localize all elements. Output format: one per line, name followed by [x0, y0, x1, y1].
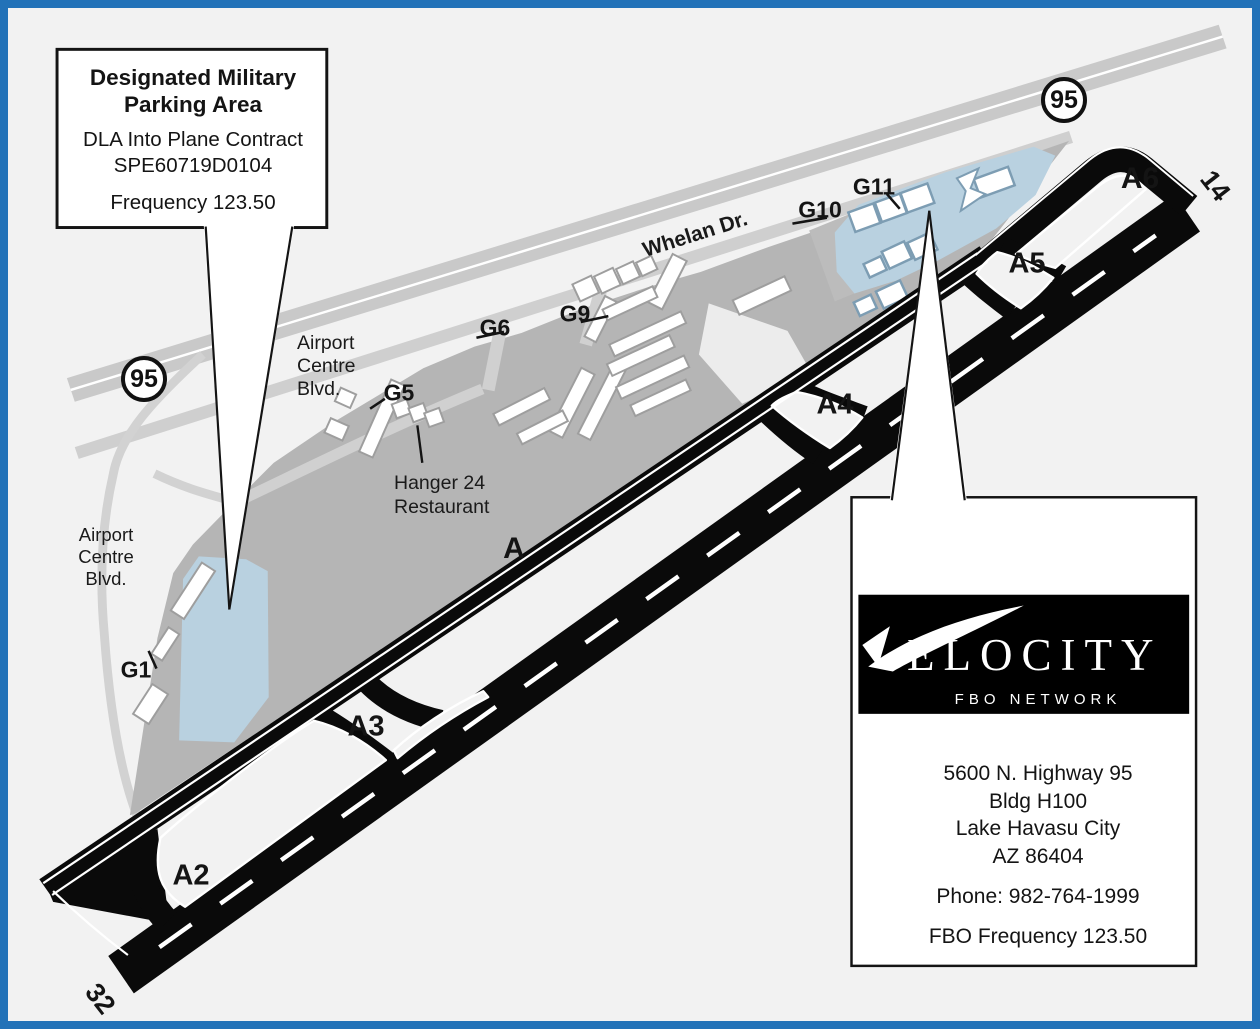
road-label-line: Blvd. [60, 568, 152, 590]
taxiway-a4-label: A4 [816, 391, 853, 420]
road-label-line: Airport [60, 524, 152, 546]
poi-label-line: Hanger 24 [394, 471, 489, 495]
gate-g11-label: G11 [853, 176, 895, 199]
hanger24-restaurant-label: Hanger 24 Restaurant [394, 471, 489, 519]
shield-number: 95 [1050, 86, 1078, 115]
military-title-line: Parking Area [56, 91, 330, 118]
blvd-branch [155, 474, 230, 501]
shield-number: 95 [130, 365, 158, 394]
gate-g6-label: G6 [480, 317, 511, 340]
fbo-address-line: Lake Havasu City [863, 815, 1213, 843]
gate-g9-label: G9 [560, 303, 591, 326]
military-frequency: Frequency 123.50 [56, 190, 330, 216]
gate-g10-label: G10 [798, 199, 841, 222]
gate-g1-label: G1 [121, 659, 152, 682]
military-callout-content: Designated Military Parking Area DLA Int… [56, 50, 330, 231]
highway-95-shield-left: 95 [121, 356, 167, 402]
fbo-address-line: Bldg H100 [863, 788, 1213, 816]
taxiway-a3-label: A3 [347, 713, 384, 742]
gate-g5-label: G5 [384, 382, 415, 405]
military-contract-line: DLA Into Plane Contract [56, 127, 330, 153]
taxiway-a6-label: A6 [1121, 164, 1159, 194]
airport-centre-blvd-label-upper: Airport Centre Blvd. [297, 332, 356, 401]
fbo-frequency: FBO Frequency 123.50 [863, 923, 1213, 951]
fbo-phone: Phone: 982-764-1999 [863, 883, 1213, 911]
poi-label-line: Restaurant [394, 495, 489, 519]
road-label-line: Centre [60, 546, 152, 568]
highway-95-shield-right: 95 [1041, 77, 1087, 123]
taxiway-a5-label: A5 [1008, 250, 1045, 279]
fbo-address-line: 5600 N. Highway 95 [863, 760, 1213, 788]
fbo-address-block: 5600 N. Highway 95 Bldg H100 Lake Havasu… [863, 760, 1213, 950]
military-contract-line: SPE60719D0104 [56, 153, 330, 179]
airport-centre-blvd-label-lower: Airport Centre Blvd. [60, 524, 152, 590]
road-label-line: Centre [297, 355, 356, 378]
taxiway-a-label: A [503, 534, 525, 564]
taxiway-a2-label: A2 [172, 862, 209, 891]
road-label-line: Blvd. [297, 378, 356, 401]
airport-map: 95 95 14 32 A A2 A3 A4 A5 A6 G1 G5 G6 G9… [0, 0, 1260, 1029]
velocity-logo-tagline: FBO NETWORK [870, 691, 1206, 708]
fbo-address-line: AZ 86404 [863, 843, 1213, 871]
road-label-line: Airport [297, 332, 356, 355]
velocity-logo-word: ELOCITY [907, 629, 1162, 681]
military-title-line: Designated Military [56, 64, 330, 91]
